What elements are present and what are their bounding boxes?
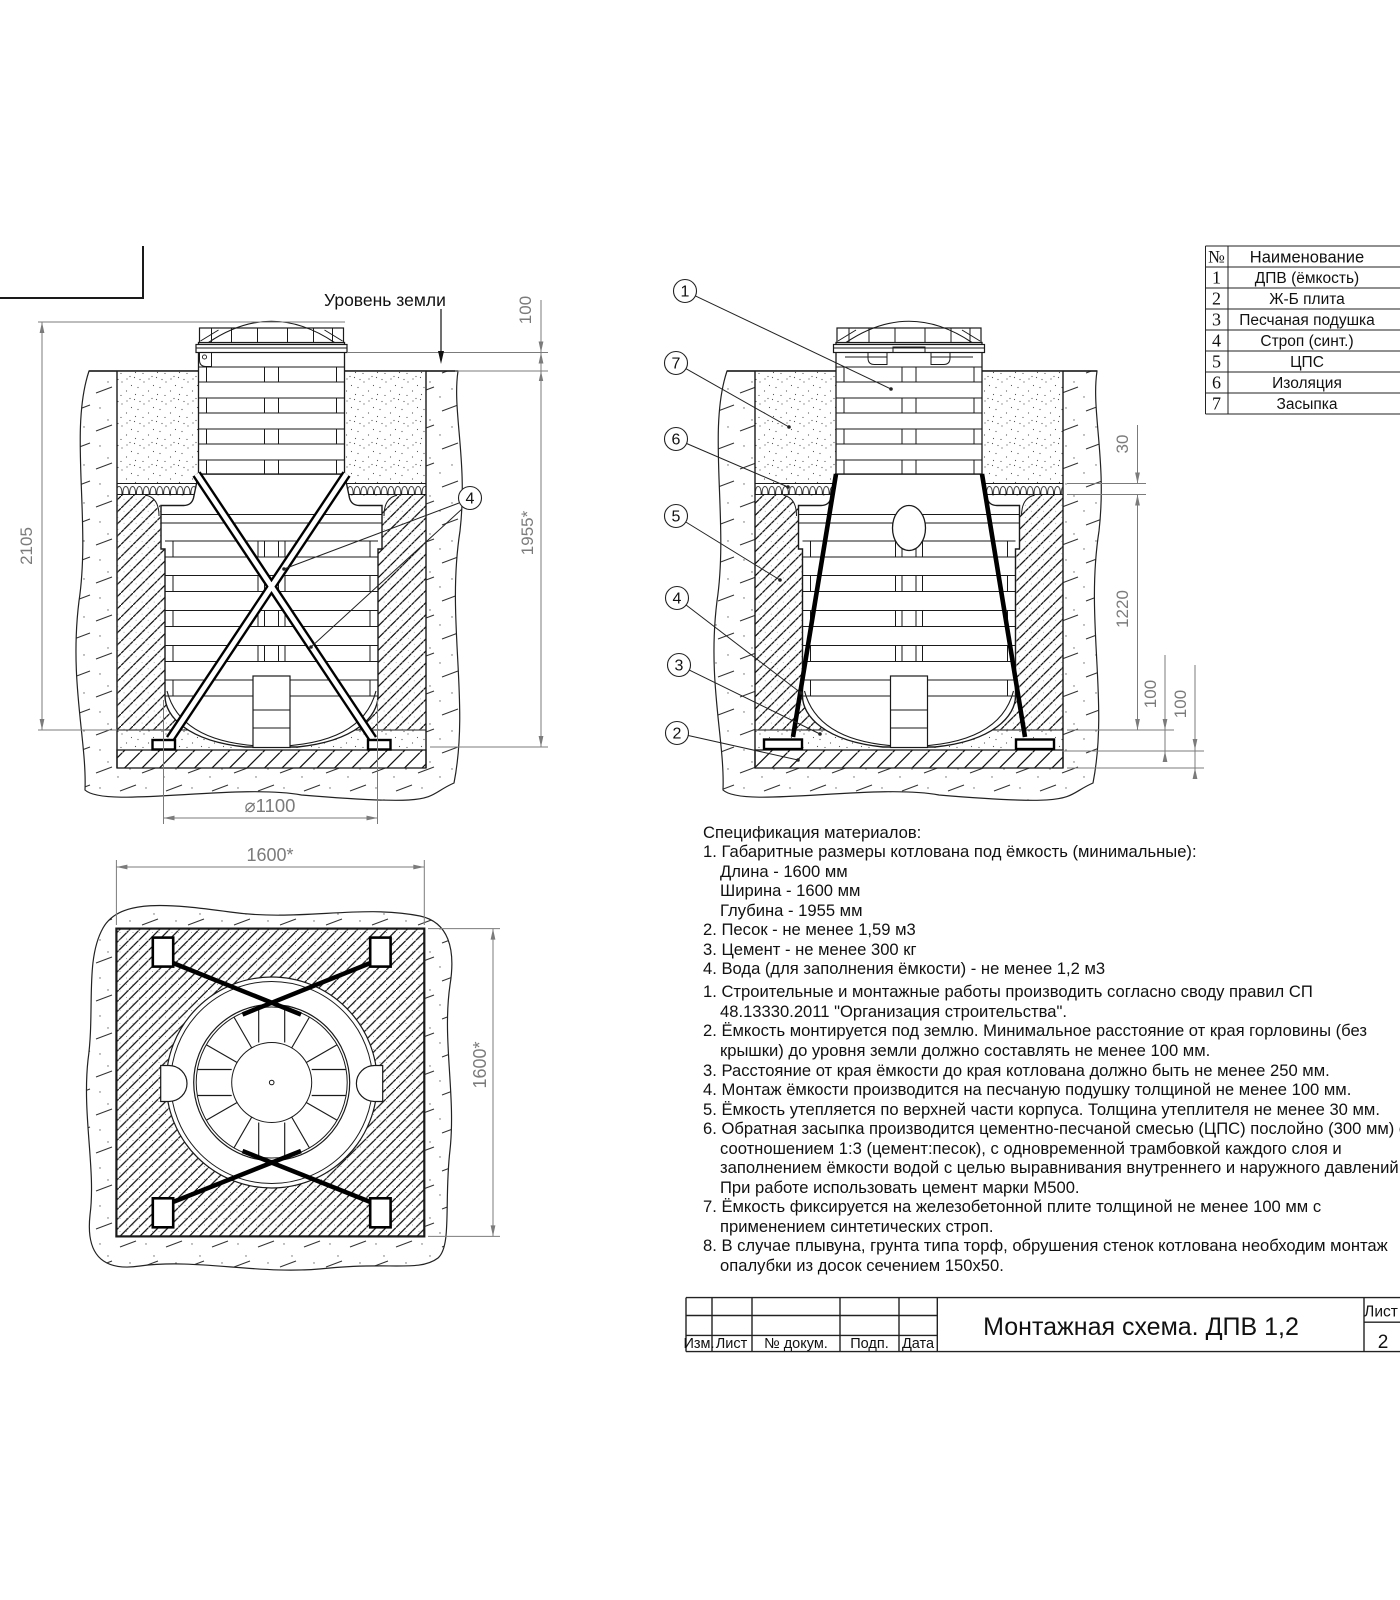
svg-text:Лист: Лист	[1364, 1304, 1398, 1321]
svg-text:Лист: Лист	[716, 1336, 748, 1352]
svg-text:№ докум.: № докум.	[764, 1336, 828, 1352]
svg-text:Подп.: Подп.	[850, 1336, 889, 1352]
svg-text:2: 2	[1378, 1332, 1389, 1353]
svg-text:Монтажная схема. ДПВ 1,2: Монтажная схема. ДПВ 1,2	[983, 1313, 1299, 1341]
svg-text:Дата: Дата	[902, 1336, 935, 1352]
svg-text:Изм.: Изм.	[683, 1336, 714, 1352]
